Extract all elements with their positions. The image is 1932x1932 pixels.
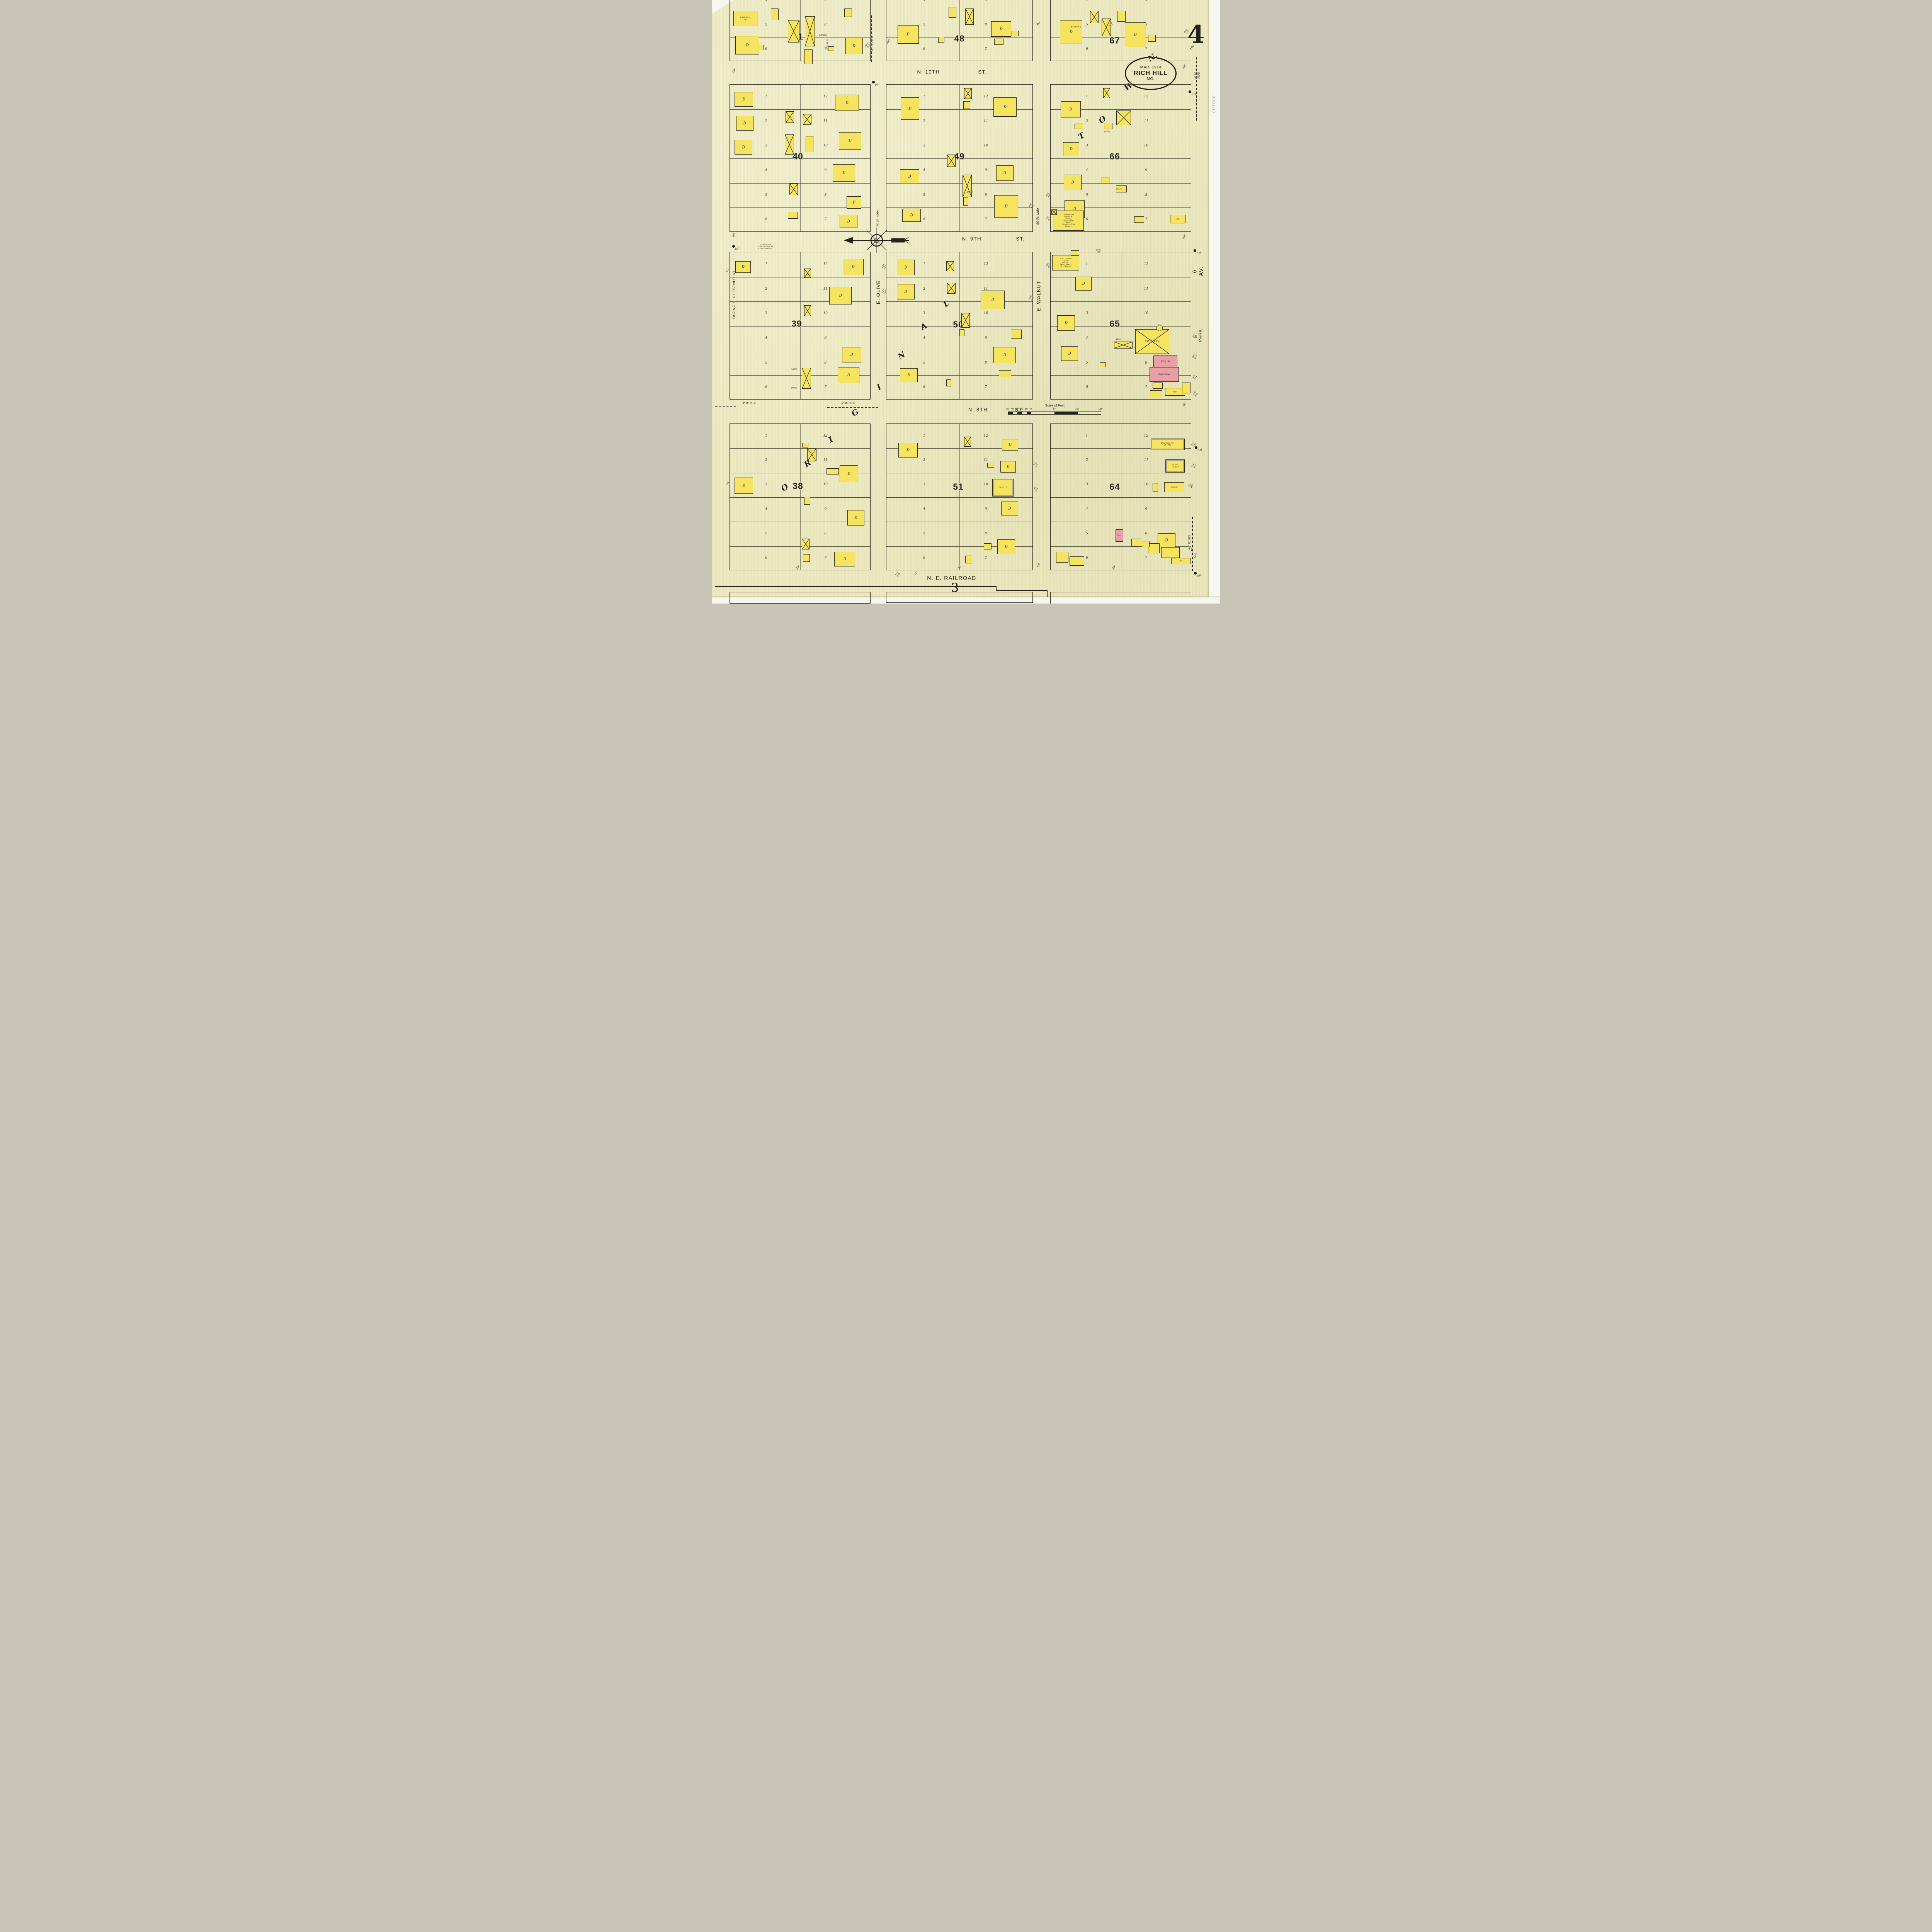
map-line <box>996 586 997 590</box>
building <box>1071 250 1079 256</box>
building: Cumberland Presby'n. Church Lights: Gas.… <box>1053 211 1084 231</box>
building <box>786 111 794 123</box>
lot-number: 4 <box>765 336 767 340</box>
building <box>938 37 944 43</box>
building-label: D <box>852 201 855 204</box>
building: Gro. <box>1170 215 1185 223</box>
building-label: D <box>908 175 911 179</box>
building: D <box>1001 502 1018 515</box>
map-annotation: 60' <box>732 232 737 238</box>
building-label: D <box>904 290 907 294</box>
lot-number: 7 <box>985 47 987 51</box>
building: D <box>1057 315 1075 331</box>
building: D <box>994 195 1018 218</box>
map-annotation: 900½ <box>791 368 797 371</box>
lot-number: 7 <box>985 218 987 221</box>
scale-segment <box>1054 412 1078 414</box>
lot-number: 9 <box>824 507 827 511</box>
block-center-line <box>1121 252 1121 399</box>
building-label: D <box>907 32 910 36</box>
building-label: D <box>908 107 911 111</box>
lot-number: 10 <box>823 144 827 148</box>
lot-number: 9 <box>824 336 827 340</box>
lot-number: 12 <box>984 262 988 266</box>
lot-number: 3 <box>765 144 767 148</box>
building <box>1117 11 1126 22</box>
cross-mark-icon <box>785 135 794 154</box>
building: D <box>901 97 919 120</box>
building: D <box>842 347 861 362</box>
house-number: 804 415 <box>1192 354 1197 360</box>
building: F.&H. Ware Ho. <box>733 11 757 26</box>
lot-number: 8 <box>1145 361 1147 365</box>
building-label: D <box>1069 107 1072 111</box>
lot-number: 4 <box>1086 0 1088 2</box>
building: D <box>1064 175 1082 190</box>
building <box>1100 362 1106 367</box>
building <box>964 88 972 99</box>
lot-number: 2 <box>765 119 767 123</box>
building <box>828 46 834 51</box>
building <box>984 543 992 549</box>
lot-number: 9 <box>985 336 987 340</box>
map-line <box>827 407 878 408</box>
block-number: 48 <box>954 34 965 44</box>
map-line <box>1047 590 1048 597</box>
building <box>804 269 811 278</box>
lot-number: 5 <box>923 361 925 365</box>
lot-number: 12 <box>1144 262 1148 266</box>
map-line <box>715 586 996 587</box>
building <box>827 468 839 474</box>
lot-number: 11 <box>823 287 827 291</box>
building <box>963 175 972 197</box>
scale-tick: 40 <box>1011 408 1014 410</box>
block-number: 39 <box>791 319 802 329</box>
street-label: E. OLIVE <box>876 280 881 304</box>
building <box>1156 325 1163 331</box>
building: D <box>735 140 752 155</box>
building <box>1070 556 1084 566</box>
lot-number: 6 <box>1086 385 1088 389</box>
lot-number: 4 <box>765 0 767 2</box>
lot-number: 4 <box>923 507 925 511</box>
building: D <box>843 259 864 275</box>
lot-number: 1 <box>1086 262 1088 266</box>
street-label: N. 10TH <box>917 69 940 75</box>
lot-number: 6 <box>1086 556 1088 560</box>
lot-number: 1 <box>765 262 767 266</box>
cross-mark-icon <box>804 306 811 316</box>
building-label: D <box>910 213 913 217</box>
cross-mark-icon <box>808 449 816 461</box>
building-label: D <box>847 472 850 476</box>
scale-tick: 100 <box>1075 408 1080 410</box>
house-number: 823 <box>726 268 730 273</box>
street-label: N. 8TH <box>968 407 988 412</box>
map-annotation: 70 Ft wide <box>876 210 879 226</box>
building <box>947 283 956 294</box>
building: D <box>847 196 861 209</box>
building-label: D <box>742 145 745 149</box>
building-label: D <box>1007 465 1009 469</box>
lot-number: 4 <box>765 168 767 172</box>
building: D <box>839 132 861 150</box>
map-annotation: 45' TO FR. D. <box>1070 26 1082 28</box>
building: D <box>1002 439 1018 451</box>
building <box>1153 483 1158 492</box>
lot-number: 12 <box>1144 434 1148 438</box>
lot-number: 6 <box>1086 47 1088 51</box>
cross-mark-icon <box>966 9 973 24</box>
house-number: 121 609 <box>895 571 900 577</box>
lot-number: 1 <box>765 434 767 438</box>
building: D <box>997 539 1015 554</box>
building-label: D <box>743 121 746 125</box>
block-number: 65 <box>1109 319 1120 329</box>
building-label: D <box>1082 282 1085 286</box>
lot-number: 8 <box>824 361 827 365</box>
map-annotation: 67' TO FR. D. <box>827 39 829 51</box>
building <box>1142 541 1150 547</box>
lot-number: 8 <box>985 23 987 27</box>
lot-number: 9 <box>985 168 987 172</box>
building <box>963 101 970 109</box>
building <box>1075 124 1083 129</box>
block-center-line <box>959 0 960 61</box>
lot-number: 7 <box>824 385 827 389</box>
lot-number: 7 <box>1145 47 1147 51</box>
lot-number: 7 <box>985 385 987 389</box>
map-annotation: 8" W. PIPE <box>1194 70 1200 81</box>
lot-number: 9 <box>985 0 987 2</box>
block-number: 51 <box>953 482 964 492</box>
house-number: 716 410 <box>1191 463 1197 469</box>
lot-number: 7 <box>1145 218 1147 221</box>
map-line <box>1192 517 1193 571</box>
building <box>1090 11 1099 23</box>
building <box>806 136 813 152</box>
building: Hay Ware Ho. (Ir. Cl.) <box>1151 439 1184 450</box>
cross-mark-icon <box>1090 11 1098 23</box>
cross-mark-icon <box>962 313 969 327</box>
block-center-line <box>959 424 960 570</box>
block-number: 49 <box>954 151 965 162</box>
map-annotation: 80' <box>1036 562 1041 568</box>
building-label: D <box>1068 352 1071 355</box>
building: D <box>897 260 915 275</box>
building-label: D <box>839 294 842 298</box>
lot-number: 2 <box>1086 119 1088 123</box>
lot-number: 7 <box>1145 385 1147 389</box>
lot-number: 10 <box>1144 311 1148 315</box>
lot-number: 10 <box>984 483 988 486</box>
street-label: 6 AV. <box>1192 266 1204 277</box>
building: D <box>996 165 1014 181</box>
sanborn-map-sheet: MAR. 1914 RICH HILL MO. 4 3 <box>712 0 1220 604</box>
lot-number: 5 <box>1086 193 1088 197</box>
city-block-partial <box>1050 592 1191 604</box>
building <box>1104 123 1112 129</box>
lot-number: 11 <box>823 458 827 462</box>
map-annotation: 100' <box>1193 552 1199 559</box>
lot-number: 5 <box>1086 23 1088 27</box>
house-number: 713 <box>726 481 730 486</box>
lot-number: 4 <box>923 336 925 340</box>
lot-number: 5 <box>1086 532 1088 536</box>
street-label: ST. <box>1015 407 1024 412</box>
building: Vac. <box>1171 558 1190 564</box>
building <box>959 329 964 336</box>
building-label: Bl. Sm. (Ir. Cl.) <box>1172 464 1178 468</box>
building-label: Vac. <box>1117 534 1121 536</box>
building-label: (Ir.Cl.) D <box>999 486 1007 489</box>
block-center-line <box>800 424 801 570</box>
hydrant-label: D.H. <box>875 83 881 87</box>
lot-number: 6 <box>765 218 767 221</box>
building-label: D <box>742 265 744 269</box>
paper-margin-right <box>1209 0 1220 604</box>
building <box>946 379 951 386</box>
building-label: D <box>852 265 854 269</box>
building <box>802 539 810 549</box>
lot-number: 6 <box>923 385 925 389</box>
building: Bl. Sm. (Ir. Cl.) <box>1166 460 1184 472</box>
building <box>1153 383 1163 389</box>
lot-number: 4 <box>765 507 767 511</box>
lot-number: 3 <box>923 483 925 486</box>
map-annotation: 806½ <box>1116 338 1122 340</box>
building-label: D <box>843 557 846 561</box>
block-center-line <box>1121 85 1121 231</box>
building-label: D <box>1008 507 1011 510</box>
building <box>961 313 970 328</box>
cross-mark-icon <box>1114 342 1132 348</box>
cross-mark-icon <box>805 17 815 46</box>
building-label: D <box>746 43 748 47</box>
building <box>1102 19 1111 36</box>
building: D <box>993 97 1017 117</box>
lot-number: 7 <box>824 47 827 51</box>
lot-number: 11 <box>984 119 988 123</box>
building: D <box>991 21 1011 37</box>
cross-mark-icon <box>964 88 971 99</box>
building-label: D <box>1003 171 1006 175</box>
map-annotation: 900½ <box>966 191 973 194</box>
building <box>844 9 852 17</box>
cross-mark-icon <box>947 155 955 167</box>
plat-letter: I <box>875 383 883 392</box>
map-state: MO. <box>1147 77 1155 82</box>
building-label: Vac. <box>1173 391 1177 393</box>
cross-mark-icon <box>804 269 811 277</box>
building-label: D <box>854 516 857 520</box>
building <box>803 554 810 562</box>
building-label: D <box>742 97 745 101</box>
lot-number: 3 <box>1086 311 1088 315</box>
building-label: D <box>1073 207 1076 211</box>
hydrant-dot <box>732 245 735 248</box>
lot-number: 12 <box>984 95 988 99</box>
block-center-line <box>1121 424 1121 570</box>
cross-mark-icon <box>947 283 955 293</box>
building: D <box>981 291 1005 309</box>
lot-number: 12 <box>823 262 827 266</box>
lot-number: 8 <box>1145 193 1147 197</box>
lot-number: 8 <box>1145 532 1147 536</box>
block-center-line <box>1121 0 1121 61</box>
lot-number: 5 <box>923 532 925 536</box>
building-label: Vac. <box>1179 560 1183 562</box>
lot-number: 2 <box>765 458 767 462</box>
building <box>1148 35 1156 42</box>
lot-number: 1 <box>765 95 767 99</box>
map-annotation: 6" W. PIPE <box>842 402 855 405</box>
lot-number: 12 <box>984 434 988 438</box>
building <box>1161 547 1180 558</box>
city-block-partial <box>886 592 1033 603</box>
building: D <box>1125 22 1146 47</box>
building: D <box>847 510 864 526</box>
building: D <box>900 368 918 382</box>
building-label: D <box>1165 538 1168 542</box>
building-label: Ware Ho. <box>1160 360 1170 362</box>
lot-number: 6 <box>923 218 925 221</box>
building: D <box>1075 277 1092 291</box>
building-label: D <box>853 44 855 48</box>
lot-number: 7 <box>824 218 827 221</box>
building <box>804 305 811 316</box>
lot-number: 4 <box>1086 336 1088 340</box>
lot-number: 1 <box>923 95 925 99</box>
plat-letter: G <box>850 407 860 418</box>
building: D <box>1000 461 1016 473</box>
building: (Ir.Cl.) D <box>993 479 1014 496</box>
building: D <box>840 215 857 228</box>
map-annotation: (328) 116 <box>1096 249 1101 253</box>
map-annotation: 907½ <box>1116 188 1122 190</box>
lot-number: 11 <box>1144 119 1148 123</box>
cross-mark-icon <box>1102 19 1111 36</box>
building-label: D <box>906 448 909 452</box>
building <box>1131 539 1142 546</box>
building: Ware Ho. <box>1153 355 1177 367</box>
hydrant-dot <box>872 81 875 83</box>
building: D <box>829 287 852 304</box>
building <box>1012 31 1019 36</box>
building: R. C. Church Lights: Lamps.- Heat: Stove… <box>1052 255 1079 270</box>
building: D <box>1061 101 1081 117</box>
cross-mark-icon <box>786 112 794 122</box>
building: D <box>1061 346 1078 361</box>
building <box>785 134 794 155</box>
hydrant-dot <box>1195 446 1197 449</box>
building: D <box>838 367 859 383</box>
lot-number: 11 <box>823 119 827 123</box>
lot-number: 8 <box>985 361 987 365</box>
lot-number: 9 <box>1145 507 1147 511</box>
block-number: 66 <box>1109 151 1120 162</box>
building <box>1102 177 1109 183</box>
building-label: D <box>1070 147 1072 151</box>
map-annotation: 947½ <box>1104 131 1110 133</box>
building: D <box>835 95 859 111</box>
lot-number: 3 <box>765 311 767 315</box>
building <box>802 443 808 447</box>
street-label: N. 9TH <box>962 236 981 241</box>
lot-number: 10 <box>984 311 988 315</box>
lot-number: 3 <box>1086 144 1088 148</box>
building-label: D <box>1065 321 1067 325</box>
lot-number: 5 <box>923 193 925 197</box>
building: D <box>900 169 919 184</box>
building: D <box>834 552 855 566</box>
building <box>1114 342 1133 349</box>
lot-number: 11 <box>1144 287 1148 291</box>
building-label: D <box>1071 180 1074 184</box>
map-line <box>996 590 1047 591</box>
building <box>946 261 954 271</box>
building-label: R. C. Church Lights: Lamps.- Heat: Stove… <box>1059 258 1072 268</box>
lot-number: 3 <box>1086 483 1088 486</box>
city-block-partial <box>730 592 871 604</box>
building: D <box>898 25 919 44</box>
building: D <box>735 261 751 273</box>
building: D <box>735 478 753 494</box>
block-number: 64 <box>1109 482 1120 492</box>
house-number: 802 414 <box>1192 374 1197 380</box>
building: D <box>735 92 753 107</box>
cross-mark-icon <box>1104 88 1110 98</box>
street-label: E. WALNUT <box>1036 281 1041 311</box>
map-annotation: Silo <box>1158 324 1161 326</box>
city-block <box>730 423 871 570</box>
lot-number: 1 <box>1086 95 1088 99</box>
building <box>965 556 972 563</box>
lot-number: 8 <box>824 532 827 536</box>
building <box>949 7 956 18</box>
building <box>1116 111 1131 125</box>
map-line <box>1196 57 1197 121</box>
lot-number: 11 <box>984 287 988 291</box>
building-label: Hay Ware Ho. (Ir. Cl.) <box>1161 442 1174 447</box>
building <box>947 155 956 167</box>
building-label: Paint Shop. <box>1158 373 1170 376</box>
building-label: D <box>1005 545 1007 549</box>
building <box>965 9 974 25</box>
lot-number: 7 <box>985 556 987 560</box>
building <box>1150 390 1162 397</box>
building-label: F.&H. Ware Ho. <box>740 17 751 20</box>
map-annotation: 80 Ft wide <box>1036 208 1040 224</box>
block-number: 40 <box>793 151 803 162</box>
lot-number: 1 <box>1086 434 1088 438</box>
lot-number: 6 <box>765 556 767 560</box>
scale-tick: 50 <box>1053 408 1055 410</box>
map-annotation: 60' <box>1182 401 1187 407</box>
lot-number: 11 <box>984 458 988 462</box>
cross-mark-icon <box>790 184 798 195</box>
lot-number: 9 <box>824 168 827 172</box>
cross-mark-icon <box>788 20 799 42</box>
map-date: MAR. 1914 <box>1140 65 1162 70</box>
building-label: D <box>904 265 907 269</box>
lot-number: 2 <box>923 119 925 123</box>
building-label: D <box>742 484 745 488</box>
house-number: 800 413 <box>1192 391 1198 397</box>
map-annotation: 80' <box>1036 20 1041 26</box>
map-annotation: 60' <box>1182 234 1187 239</box>
